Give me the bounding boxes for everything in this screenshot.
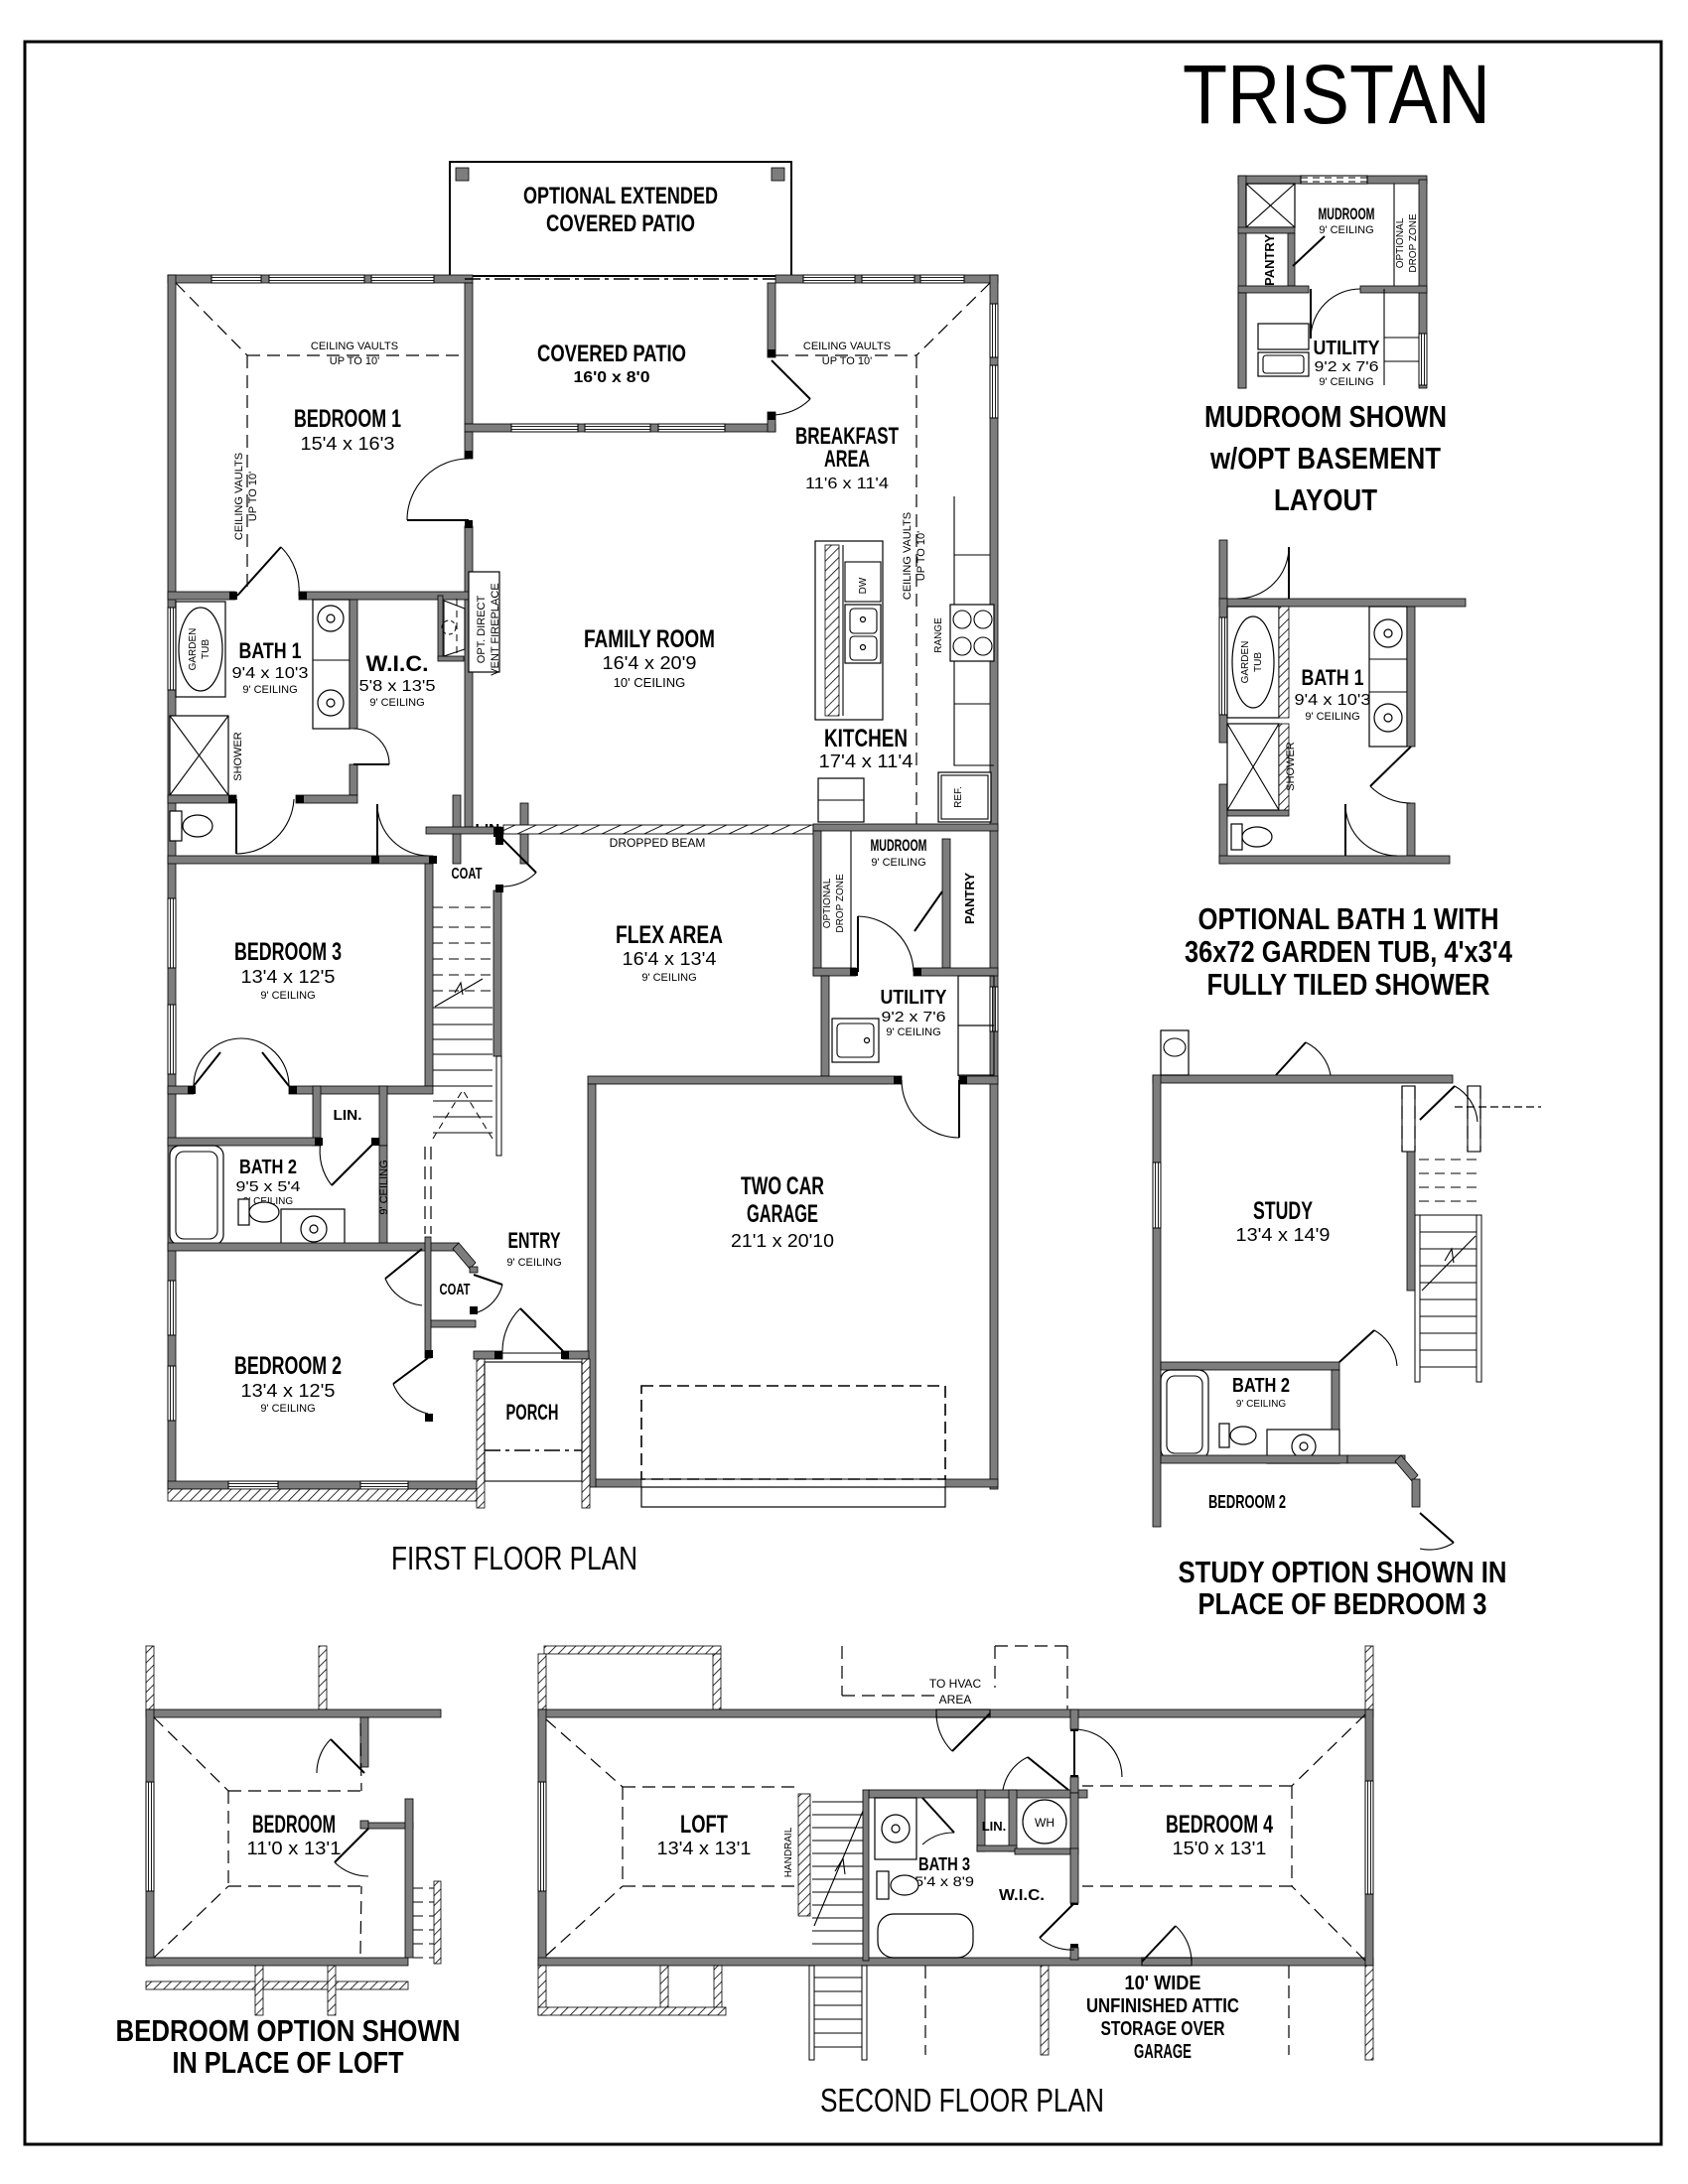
svg-text:GARDEN: GARDEN bbox=[188, 628, 199, 671]
svg-text:STUDY: STUDY bbox=[1253, 1197, 1313, 1225]
svg-text:MUDROOM: MUDROOM bbox=[1319, 205, 1375, 223]
svg-text:SHOWER: SHOWER bbox=[1285, 742, 1297, 791]
svg-text:BEDROOM OPTION SHOWN: BEDROOM OPTION SHOWN bbox=[116, 2013, 461, 2048]
svg-text:PLACE OF BEDROOM 3: PLACE OF BEDROOM 3 bbox=[1198, 1586, 1487, 1621]
svg-text:STUDY OPTION SHOWN IN: STUDY OPTION SHOWN IN bbox=[1179, 1555, 1507, 1589]
svg-text:PORCH: PORCH bbox=[506, 1400, 559, 1425]
svg-text:CEILING VAULTS: CEILING VAULTS bbox=[902, 512, 914, 600]
svg-text:FIRST FLOOR PLAN: FIRST FLOOR PLAN bbox=[391, 1540, 637, 1576]
svg-text:9'2 x 7'6: 9'2 x 7'6 bbox=[882, 1009, 946, 1025]
svg-text:17'4 x 11'4: 17'4 x 11'4 bbox=[819, 751, 914, 771]
svg-text:IN PLACE OF LOFT: IN PLACE OF LOFT bbox=[173, 2045, 404, 2080]
svg-text:BEDROOM 1: BEDROOM 1 bbox=[294, 405, 401, 433]
svg-text:TUB: TUB bbox=[1253, 652, 1264, 672]
svg-text:DW: DW bbox=[858, 577, 869, 594]
svg-text:15'0 x 13'1: 15'0 x 13'1 bbox=[1173, 1839, 1267, 1858]
svg-text:FAMILY ROOM: FAMILY ROOM bbox=[584, 625, 715, 653]
svg-text:9' CEILING: 9' CEILING bbox=[871, 857, 925, 869]
svg-text:PANTRY: PANTRY bbox=[1262, 234, 1277, 286]
svg-text:WH: WH bbox=[1035, 1816, 1055, 1830]
svg-text:BATH 2: BATH 2 bbox=[239, 1157, 297, 1178]
svg-text:HANDRAIL: HANDRAIL bbox=[783, 1827, 794, 1877]
svg-text:OPTIONAL: OPTIONAL bbox=[822, 878, 833, 928]
svg-text:9' CEILING: 9' CEILING bbox=[506, 1257, 561, 1269]
svg-text:13'4 x 13'1: 13'4 x 13'1 bbox=[657, 1839, 752, 1858]
svg-text:9' CEILING: 9' CEILING bbox=[1319, 376, 1373, 388]
svg-text:OPTIONAL BATH 1 WITH: OPTIONAL BATH 1 WITH bbox=[1198, 901, 1499, 936]
svg-text:9' CEILING: 9' CEILING bbox=[1305, 711, 1359, 723]
svg-text:11'0 x 13'1: 11'0 x 13'1 bbox=[247, 1839, 342, 1858]
svg-text:COVERED PATIO: COVERED PATIO bbox=[546, 210, 695, 237]
svg-text:COVERED PATIO: COVERED PATIO bbox=[537, 341, 686, 367]
svg-text:DROPPED BEAM: DROPPED BEAM bbox=[610, 836, 706, 850]
svg-text:COAT: COAT bbox=[440, 1282, 471, 1298]
svg-text:9'4 x 10'3: 9'4 x 10'3 bbox=[232, 665, 309, 682]
svg-text:DROP ZONE: DROP ZONE bbox=[1408, 213, 1419, 273]
svg-text:W.I.C.: W.I.C. bbox=[366, 651, 429, 676]
svg-text:FLEX AREA: FLEX AREA bbox=[616, 921, 723, 949]
svg-text:LAYOUT: LAYOUT bbox=[1274, 482, 1377, 517]
svg-text:BATH 2: BATH 2 bbox=[1232, 1375, 1290, 1397]
svg-text:UP TO 10': UP TO 10' bbox=[822, 355, 872, 367]
svg-text:GARDEN: GARDEN bbox=[1240, 641, 1251, 684]
svg-text:DROP ZONE: DROP ZONE bbox=[835, 874, 846, 933]
svg-text:UP TO 10': UP TO 10' bbox=[915, 531, 927, 581]
svg-text:BEDROOM 3: BEDROOM 3 bbox=[234, 938, 342, 966]
svg-text:KITCHEN: KITCHEN bbox=[824, 725, 908, 752]
svg-text:CEILING VAULTS: CEILING VAULTS bbox=[311, 341, 398, 352]
svg-text:BEDROOM 4: BEDROOM 4 bbox=[1166, 1811, 1273, 1839]
svg-text:VENT FIREPLACE: VENT FIREPLACE bbox=[490, 583, 501, 675]
svg-text:LIN.: LIN. bbox=[982, 1819, 1007, 1834]
svg-text:TUB: TUB bbox=[201, 639, 211, 659]
svg-text:BEDROOM 2: BEDROOM 2 bbox=[234, 1352, 342, 1380]
svg-text:13'4 x 12'5: 13'4 x 12'5 bbox=[241, 1381, 336, 1401]
svg-text:W.I.C.: W.I.C. bbox=[999, 1887, 1045, 1904]
svg-text:36x72 GARDEN TUB, 4'x3'4: 36x72 GARDEN TUB, 4'x3'4 bbox=[1185, 934, 1513, 969]
svg-text:16'4 x 20'9: 16'4 x 20'9 bbox=[603, 653, 697, 673]
svg-text:UNFINISHED ATTIC: UNFINISHED ATTIC bbox=[1086, 1995, 1239, 2017]
svg-text:13'4 x 14'9: 13'4 x 14'9 bbox=[1236, 1225, 1331, 1245]
svg-text:LIN.: LIN. bbox=[334, 1107, 362, 1124]
svg-text:9' CEILING: 9' CEILING bbox=[1319, 224, 1373, 236]
svg-text:TRISTAN: TRISTAN bbox=[1183, 48, 1490, 141]
svg-text:MUDROOM: MUDROOM bbox=[871, 836, 927, 855]
svg-text:11'6 x 11'4: 11'6 x 11'4 bbox=[805, 476, 889, 492]
svg-text:SECOND FLOOR PLAN: SECOND FLOOR PLAN bbox=[820, 2082, 1104, 2118]
svg-text:21'1 x 20'10: 21'1 x 20'10 bbox=[731, 1231, 834, 1251]
svg-text:TWO CAR: TWO CAR bbox=[741, 1172, 824, 1200]
svg-text:COAT: COAT bbox=[452, 866, 483, 883]
svg-text:SHOWER: SHOWER bbox=[232, 732, 244, 781]
svg-text:CEILING VAULTS: CEILING VAULTS bbox=[233, 453, 245, 540]
svg-text:FULLY TILED SHOWER: FULLY TILED SHOWER bbox=[1207, 967, 1490, 1002]
svg-text:ENTRY: ENTRY bbox=[508, 1228, 561, 1253]
svg-text:CEILING VAULTS: CEILING VAULTS bbox=[803, 341, 891, 352]
svg-text:BATH 3: BATH 3 bbox=[918, 1854, 970, 1874]
svg-text:9' CEILING: 9' CEILING bbox=[260, 990, 315, 1002]
svg-text:PANTRY: PANTRY bbox=[962, 873, 977, 924]
svg-text:10' WIDE: 10' WIDE bbox=[1125, 1973, 1201, 1994]
svg-text:OPTIONAL EXTENDED: OPTIONAL EXTENDED bbox=[523, 183, 718, 209]
svg-text:STORAGE OVER: STORAGE OVER bbox=[1101, 2018, 1225, 2040]
svg-text:GARAGE: GARAGE bbox=[1134, 2041, 1192, 2063]
svg-text:TO HVAC: TO HVAC bbox=[929, 1677, 982, 1691]
svg-text:9' CEILING: 9' CEILING bbox=[886, 1026, 940, 1038]
svg-text:MUDROOM SHOWN: MUDROOM SHOWN bbox=[1204, 399, 1447, 434]
svg-text:BEDROOM 2: BEDROOM 2 bbox=[1208, 1492, 1286, 1512]
svg-text:UTILITY: UTILITY bbox=[881, 987, 948, 1009]
svg-text:16'4 x 13'4: 16'4 x 13'4 bbox=[623, 949, 717, 969]
svg-text:9' CEILING: 9' CEILING bbox=[260, 1403, 315, 1415]
svg-text:w/OPT BASEMENT: w/OPT BASEMENT bbox=[1209, 441, 1441, 476]
svg-text:9' CEILING: 9' CEILING bbox=[641, 972, 696, 984]
svg-text:OPT. DIRECT: OPT. DIRECT bbox=[476, 595, 488, 663]
svg-text:10' CEILING: 10' CEILING bbox=[614, 675, 686, 690]
svg-text:5'8 x 13'5: 5'8 x 13'5 bbox=[359, 678, 436, 695]
svg-text:9' CEILING: 9' CEILING bbox=[1236, 1399, 1286, 1410]
svg-text:BATH 1: BATH 1 bbox=[239, 638, 302, 663]
svg-text:UTILITY: UTILITY bbox=[1314, 338, 1381, 359]
svg-text:9'5 x 5'4: 9'5 x 5'4 bbox=[236, 1178, 301, 1195]
svg-text:UP TO 10': UP TO 10' bbox=[330, 355, 379, 367]
svg-text:9' CEILING: 9' CEILING bbox=[369, 697, 424, 709]
svg-text:9' CEILING: 9' CEILING bbox=[242, 684, 297, 696]
svg-text:9'4 x 10'3: 9'4 x 10'3 bbox=[1295, 692, 1371, 709]
svg-text:AREA: AREA bbox=[939, 1693, 972, 1706]
svg-text:RANGE: RANGE bbox=[933, 617, 944, 653]
svg-text:BATH 1: BATH 1 bbox=[1302, 665, 1364, 690]
svg-text:9'2 x 7'6: 9'2 x 7'6 bbox=[1315, 358, 1379, 375]
svg-text:OPTIONAL: OPTIONAL bbox=[1395, 217, 1406, 268]
svg-text:16'0 x 8'0: 16'0 x 8'0 bbox=[574, 369, 650, 386]
svg-text:AREA: AREA bbox=[824, 446, 870, 473]
svg-text:9' CEILING: 9' CEILING bbox=[378, 1160, 390, 1214]
svg-text:UP TO 10': UP TO 10' bbox=[247, 472, 259, 521]
svg-text:13'4 x 12'5: 13'4 x 12'5 bbox=[241, 967, 336, 987]
svg-text:GARAGE: GARAGE bbox=[747, 1200, 818, 1228]
svg-text:REF.: REF. bbox=[953, 786, 964, 808]
svg-text:5'4 x 8'9: 5'4 x 8'9 bbox=[914, 1873, 974, 1889]
svg-text:BEDROOM: BEDROOM bbox=[252, 1811, 336, 1839]
svg-text:LOFT: LOFT bbox=[680, 1811, 728, 1839]
svg-text:15'4 x 16'3: 15'4 x 16'3 bbox=[301, 434, 395, 454]
